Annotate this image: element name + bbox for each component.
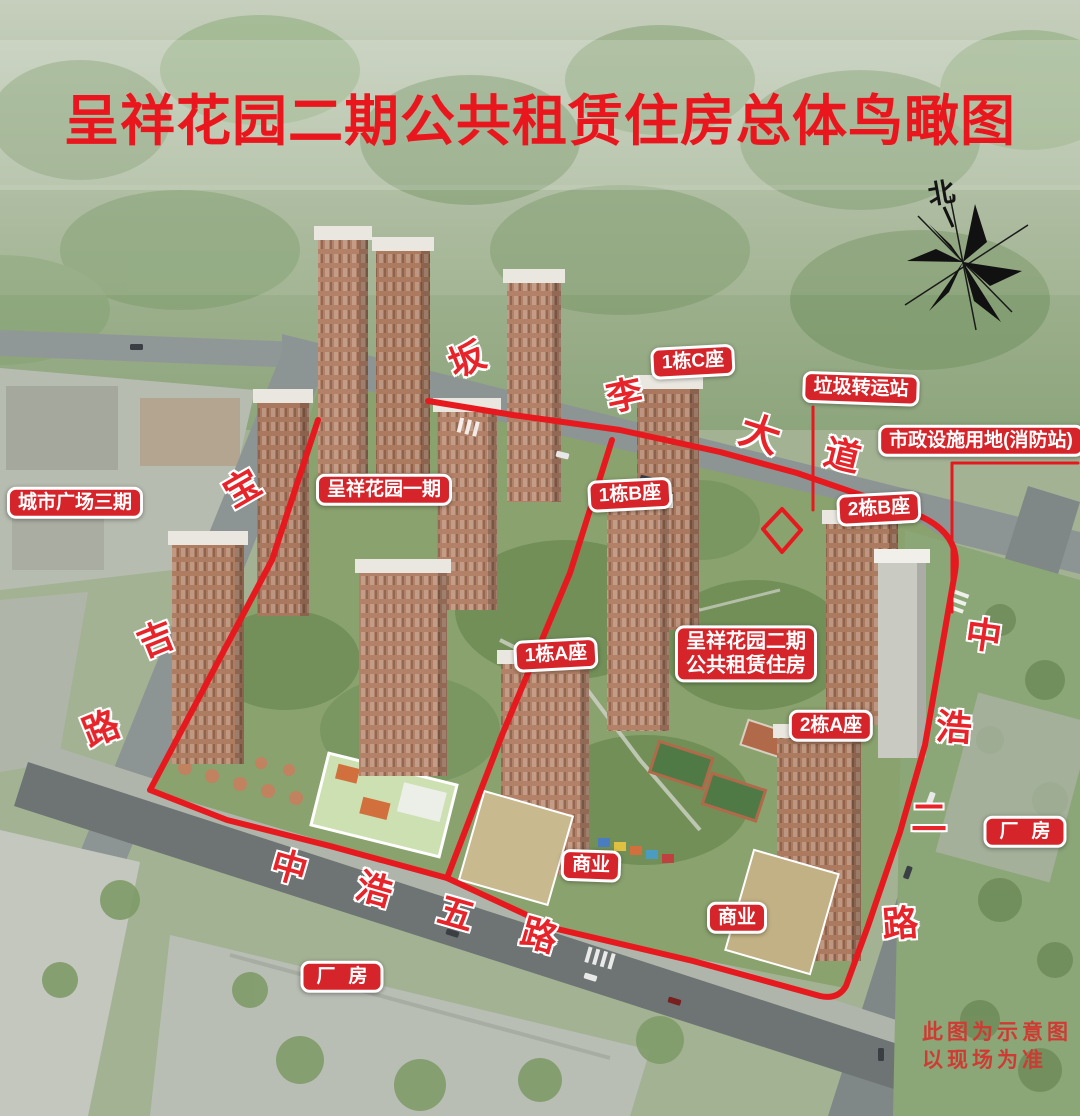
label-commercial-west: 商业 <box>560 849 621 883</box>
road-zhonghao-erlu-char-3: 二 <box>911 789 947 841</box>
road-zhonghao-erlu-char-4: 路 <box>880 894 920 948</box>
label-garden-phase2-line2: 公共租赁住房 <box>686 654 806 678</box>
label-building-1a: 1栋A座 <box>513 637 599 674</box>
label-commercial-east: 商业 <box>707 902 767 934</box>
road-zhonghao-erlu-char-1: 中 <box>963 605 1006 662</box>
disclaimer-line2: 以现场为准 <box>922 1044 1047 1074</box>
label-municipal-facility: 市政设施用地(消防站) <box>878 425 1080 457</box>
label-garbage-station: 垃圾转运站 <box>802 371 920 407</box>
label-garden-phase2-line1: 呈祥花园二期 <box>686 630 806 654</box>
label-building-1b: 1栋B座 <box>587 477 673 514</box>
label-building-2b: 2栋B座 <box>836 491 922 528</box>
label-factory-east: 厂房 <box>983 816 1066 848</box>
label-garden-phase2: 呈祥花园二期 公共租赁住房 <box>675 625 817 682</box>
disclaimer-line1: 此图为示意图 <box>922 1016 1072 1046</box>
label-garden-phase1: 呈祥花园一期 <box>316 474 452 506</box>
birdseye-rendering-page: 呈祥花园二期公共租赁住房总体鸟瞰图 北 1栋C座 垃圾转运站 市政设施用地(消防… <box>0 0 1080 1116</box>
label-city-plaza-phase3: 城市广场三期 <box>7 487 143 519</box>
label-building-2a: 2栋A座 <box>789 710 873 742</box>
label-factory-south: 厂房 <box>300 961 383 993</box>
label-building-1c: 1栋C座 <box>650 344 736 381</box>
road-zhonghao-erlu-char-2: 浩 <box>934 698 974 752</box>
page-title: 呈祥花园二期公共租赁住房总体鸟瞰图 <box>64 76 1016 156</box>
